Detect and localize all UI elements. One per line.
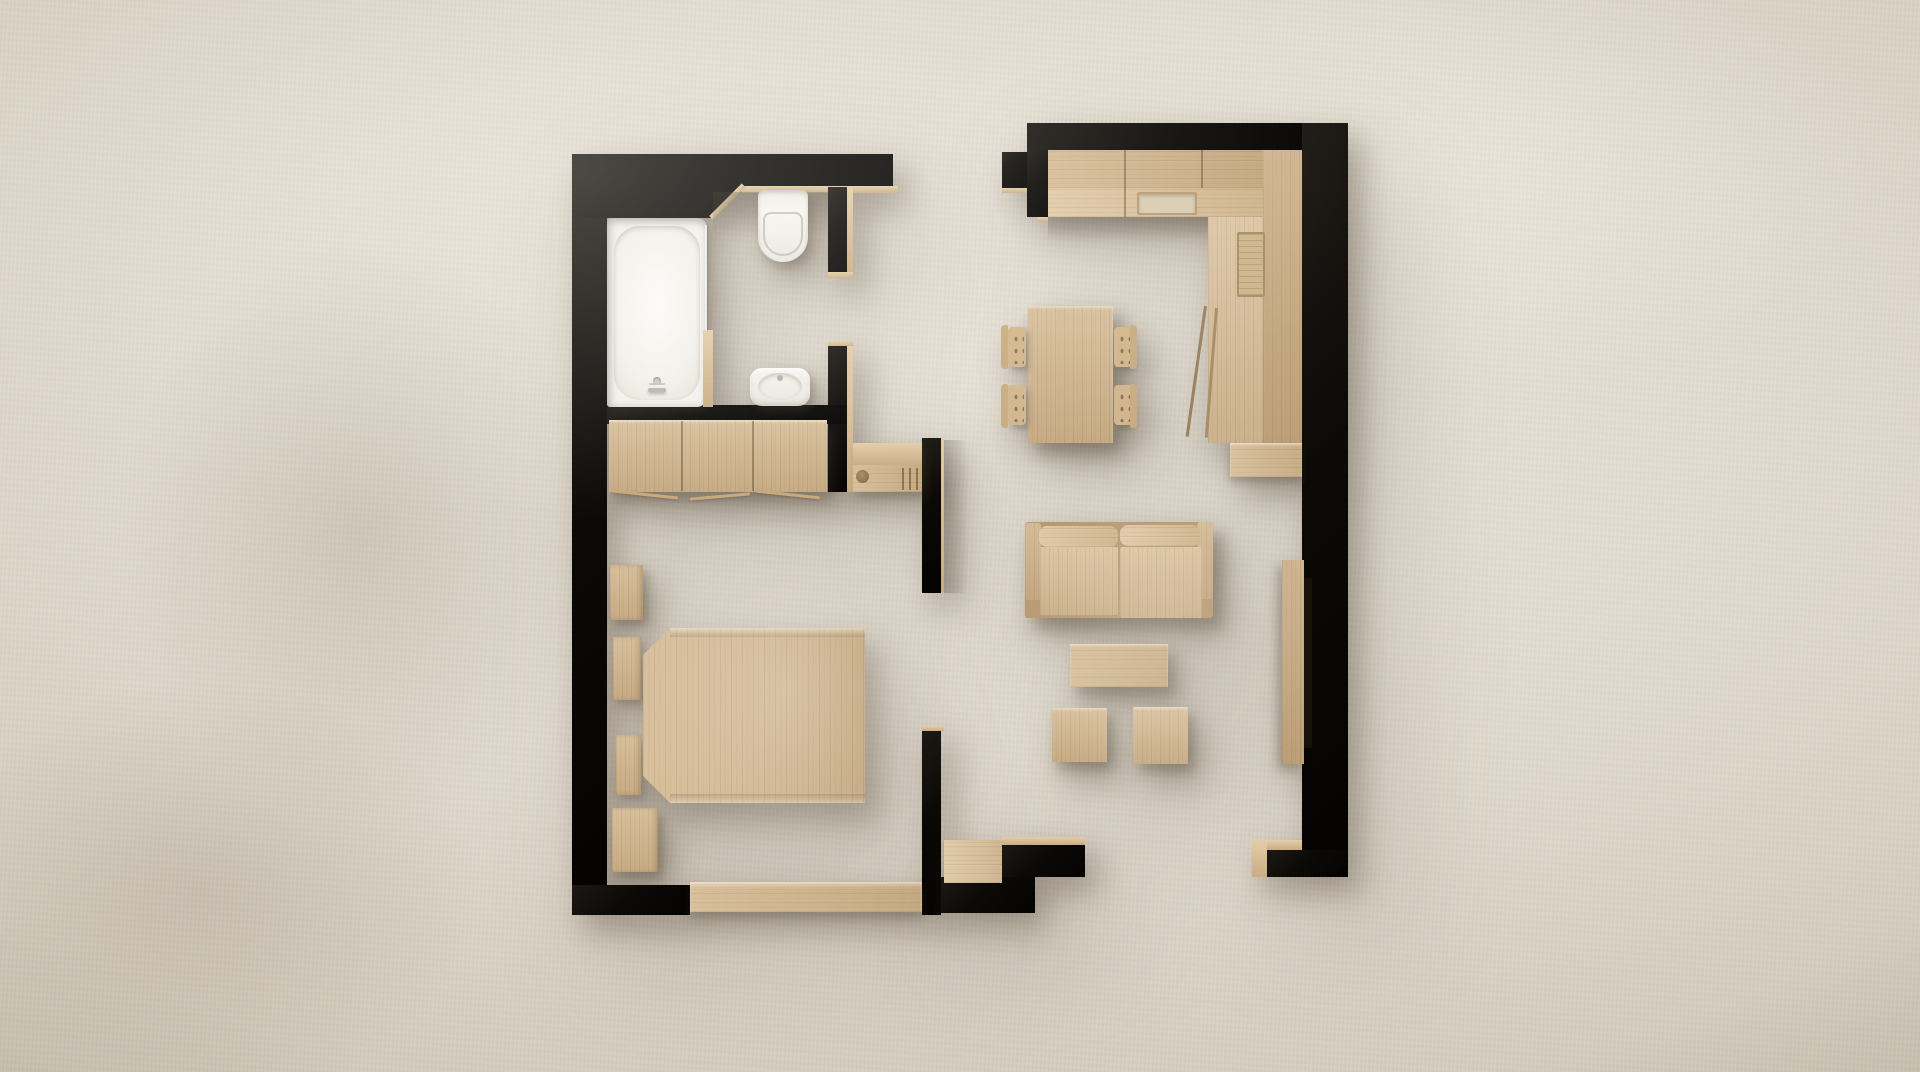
sofa-back-cushion-left bbox=[1039, 526, 1118, 547]
wall-top-right-wing bbox=[1027, 123, 1348, 150]
floor-plan-scene bbox=[0, 0, 1920, 1072]
dining-chair-backrest bbox=[1130, 325, 1137, 369]
wall-entry-step bbox=[1002, 152, 1027, 188]
right-wing bbox=[0, 0, 1920, 1072]
wall-top-corner-chunk bbox=[1027, 150, 1048, 217]
wall-bottom-right-stub bbox=[1267, 850, 1348, 877]
wall-bottom-step bbox=[1002, 845, 1085, 877]
chair-dots bbox=[1010, 388, 1024, 422]
kitchen-seam-3 bbox=[1124, 188, 1126, 217]
sofa-seat-cushion-left bbox=[1040, 547, 1118, 615]
kitchen-tall-column bbox=[1263, 150, 1302, 443]
stool-left bbox=[1052, 708, 1107, 762]
kitchen-seam-1 bbox=[1124, 150, 1126, 188]
kitchen-base-cabinet bbox=[1230, 443, 1302, 477]
tv-console bbox=[1282, 560, 1304, 764]
wall-entry-step-trim bbox=[1002, 188, 1027, 193]
chair-dots bbox=[1010, 330, 1024, 364]
entry-threshold bbox=[944, 840, 1002, 883]
dining-table bbox=[1028, 306, 1113, 443]
open-cabinet-door-line-1 bbox=[1186, 306, 1207, 437]
dining-chair bbox=[1008, 385, 1026, 425]
kitchen-upper-cabinets bbox=[1048, 150, 1263, 188]
sofa-seat-cushion-right bbox=[1120, 547, 1202, 618]
stub-trim-left bbox=[1252, 840, 1267, 877]
dining-chair bbox=[1008, 327, 1026, 367]
bottom-step-trim bbox=[1002, 837, 1085, 845]
dining-chair-backrest bbox=[1001, 384, 1008, 428]
chair-dots bbox=[1116, 330, 1130, 364]
stool-right bbox=[1133, 707, 1188, 764]
wall-corner-chunk-trim bbox=[1037, 217, 1048, 222]
built-in-appliance bbox=[1237, 232, 1265, 297]
kitchen-seam-2 bbox=[1201, 150, 1203, 188]
dining-chair-backrest bbox=[1001, 325, 1008, 369]
tv bbox=[1304, 578, 1312, 748]
sofa bbox=[1025, 522, 1213, 618]
kitchen-sink bbox=[1137, 192, 1197, 215]
kitchen-counter-shadow bbox=[1048, 217, 1208, 241]
sofa-back-cushion-right bbox=[1120, 525, 1200, 546]
coffee-table bbox=[1070, 644, 1168, 687]
hall-wall-shadow bbox=[944, 440, 968, 593]
chair-dots bbox=[1116, 388, 1130, 422]
wall-right-outer bbox=[1302, 123, 1348, 877]
dining-chair-backrest bbox=[1130, 384, 1137, 428]
